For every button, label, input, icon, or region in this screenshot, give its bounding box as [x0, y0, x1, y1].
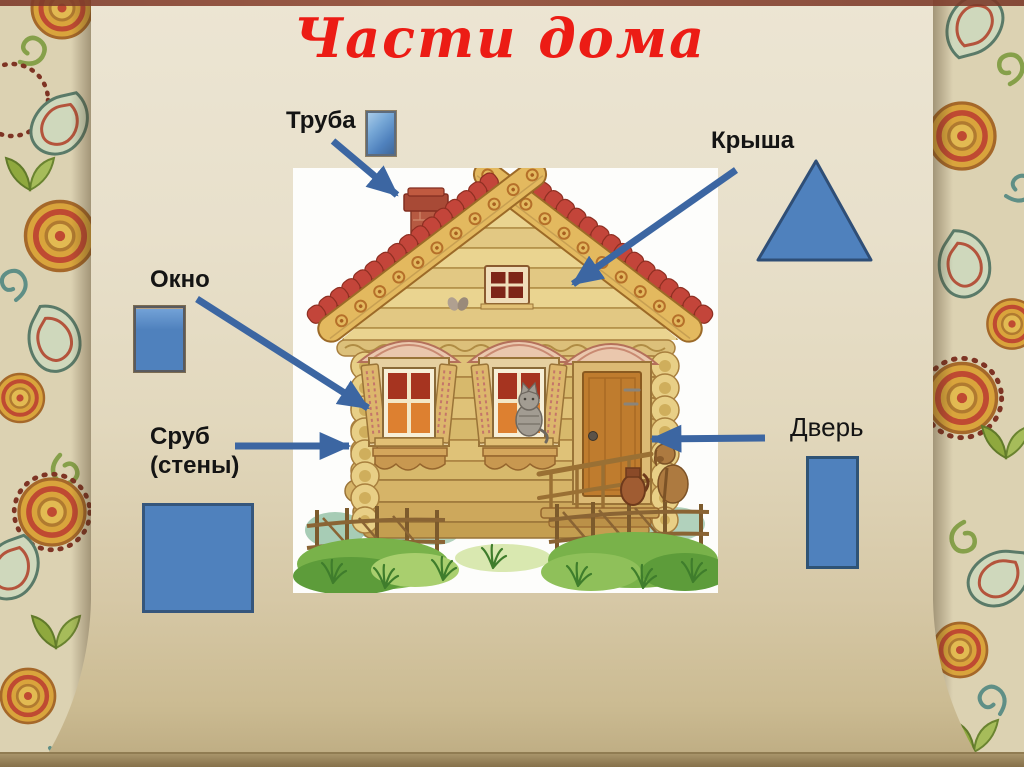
label-walls-line1: Сруб: [150, 422, 239, 451]
label-walls: Сруб (стены): [150, 422, 239, 480]
label-chimney: Труба: [286, 106, 356, 135]
label-window: Окно: [150, 265, 210, 294]
shape-door-rectangle: [806, 456, 859, 569]
label-roof: Крыша: [711, 126, 794, 155]
label-door: Дверь: [790, 413, 864, 442]
shape-window-rectangle: [134, 306, 185, 372]
page-title: Части дома: [60, 6, 940, 70]
top-border-strip: [0, 0, 1024, 6]
attic-window: [481, 266, 533, 309]
bottom-border-band: [0, 752, 1024, 767]
label-walls-line2: (стены): [150, 451, 239, 480]
house-illustration: [293, 168, 718, 593]
window-left: [359, 341, 459, 470]
shape-roof-triangle: [752, 157, 877, 265]
slide: Части дома: [0, 0, 1024, 767]
door-knob: [589, 432, 598, 441]
shape-chimney-rectangle: [366, 111, 396, 156]
left-ornament-border: [0, 0, 97, 767]
right-ornament-border: [922, 0, 1024, 767]
shape-walls-square: [142, 503, 254, 613]
window-right: [469, 341, 569, 470]
